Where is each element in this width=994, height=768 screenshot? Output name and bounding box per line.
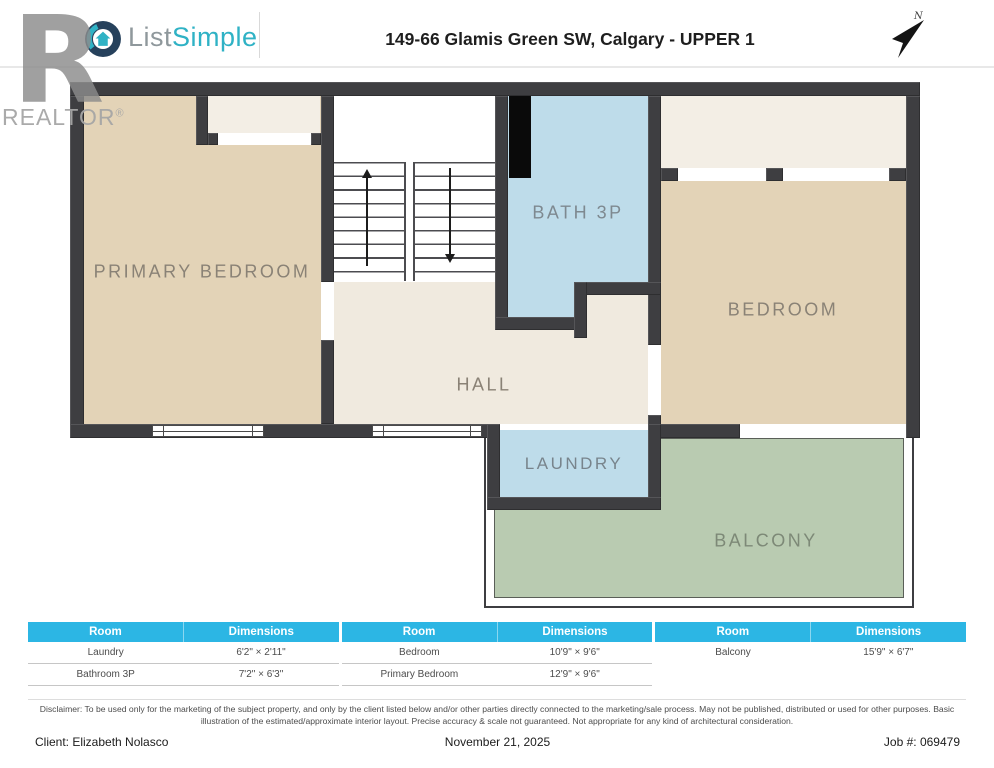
room-label-bedroom: BEDROOM <box>728 300 839 321</box>
table-row: Laundry 6'2" × 2'11" <box>28 642 339 664</box>
footer-job-number: Job #: 069479 <box>884 735 960 749</box>
table-header-row: Room Dimensions <box>655 622 966 642</box>
wall-segment <box>70 96 84 438</box>
disclaimer-rule <box>28 699 966 700</box>
wall-segment <box>321 96 334 282</box>
balcony-sliding-door <box>740 424 906 438</box>
wall-segment <box>661 168 678 181</box>
room-label-bath: BATH 3P <box>532 203 623 224</box>
wall-segment <box>70 82 920 96</box>
header-rule <box>0 66 994 68</box>
logo-simple-word: Simple <box>172 22 258 52</box>
wall-segment <box>574 282 587 338</box>
primary-bedroom-closet <box>208 96 320 133</box>
wall-segment <box>495 317 581 330</box>
table-row: Primary Bedroom 12'9" × 9'6" <box>342 664 653 686</box>
page-title: 149-66 Glamis Green SW, Calgary - UPPER … <box>260 29 880 50</box>
listsimple-logo: ListSimple <box>128 22 258 53</box>
wall-segment <box>487 497 661 510</box>
stair-up-arrow <box>366 171 368 266</box>
cell-dimensions: 7'2" × 6'3" <box>183 664 338 685</box>
wall-segment <box>311 133 321 145</box>
table-row: Bathroom 3P 7'2" × 6'3" <box>28 664 339 686</box>
column-header-room: Room <box>655 622 810 642</box>
footer-date: November 21, 2025 <box>445 735 550 749</box>
cell-dimensions: 6'2" × 2'11" <box>183 642 338 663</box>
table-row: Balcony 15'9" × 6'7" <box>655 642 966 663</box>
table-group-1: Room Dimensions Laundry 6'2" × 2'11" Bat… <box>28 622 339 686</box>
wall-segment <box>196 96 208 145</box>
hall-alcove <box>581 295 648 330</box>
room-primary-bedroom <box>84 96 321 424</box>
north-arrow-icon: N <box>886 6 930 62</box>
wall-segment <box>495 96 508 330</box>
table-row: Bedroom 10'9" × 9'6" <box>342 642 653 664</box>
stair-down-arrow <box>449 168 451 261</box>
dimensions-table: Room Dimensions Laundry 6'2" × 2'11" Bat… <box>28 622 966 686</box>
wall-segment <box>766 168 783 181</box>
floorplan-page: ListSimple 149-66 Glamis Green SW, Calga… <box>0 0 994 768</box>
wall-segment <box>889 168 906 181</box>
table-group-3: Room Dimensions Balcony 15'9" × 6'7" <box>655 622 966 686</box>
disclaimer-text: Disclaimer: To be used only for the mark… <box>37 704 957 727</box>
hall-window <box>372 425 482 437</box>
cell-room: Bathroom 3P <box>28 664 183 685</box>
room-label-laundry: LAUNDRY <box>525 454 623 474</box>
wall-segment <box>321 340 334 424</box>
cell-dimensions: 10'9" × 9'6" <box>497 642 652 663</box>
bedroom-closet-sliding-door <box>661 168 906 181</box>
primary-bedroom-window <box>152 425 264 437</box>
primary-closet-sliding-door <box>208 133 321 145</box>
plumbing-chase <box>509 96 531 178</box>
column-header-room: Room <box>28 622 183 642</box>
column-header-dimensions: Dimensions <box>183 622 339 642</box>
realtor-watermark-text: REALTOR® <box>2 104 125 131</box>
realtor-word: REALTOR <box>2 104 116 130</box>
wall-segment <box>574 282 661 295</box>
stair-treads-left <box>334 162 404 273</box>
cell-room: Bedroom <box>342 642 497 663</box>
column-header-dimensions: Dimensions <box>497 622 653 642</box>
wall-segment <box>648 96 661 345</box>
cell-dimensions: 15'9" × 6'7" <box>811 642 966 663</box>
cell-room: Laundry <box>28 642 183 663</box>
room-label-hall: HALL <box>456 375 511 396</box>
stair-divider <box>413 162 415 281</box>
column-header-dimensions: Dimensions <box>810 622 966 642</box>
footer-client: Client: Elizabeth Nolasco <box>35 735 168 749</box>
room-label-primary-bedroom: PRIMARY BEDROOM <box>94 262 311 283</box>
table-group-2: Room Dimensions Bedroom 10'9" × 9'6" Pri… <box>342 622 653 686</box>
cell-room: Primary Bedroom <box>342 664 497 685</box>
table-header-row: Room Dimensions <box>28 622 339 642</box>
logo-list-word: List <box>128 22 172 52</box>
compass-n-label: N <box>913 11 924 22</box>
registered-mark: ® <box>116 107 125 119</box>
cell-dimensions: 12'9" × 9'6" <box>497 664 652 685</box>
cell-room: Balcony <box>655 642 810 663</box>
wall-segment <box>906 96 920 438</box>
footer: Client: Elizabeth Nolasco November 21, 2… <box>35 735 960 749</box>
wall-segment <box>648 424 740 438</box>
room-label-balcony: BALCONY <box>714 531 818 552</box>
wall-segment <box>208 133 218 145</box>
stair-divider <box>404 162 406 281</box>
column-header-room: Room <box>342 622 497 642</box>
bedroom-closet <box>661 96 906 168</box>
table-header-row: Room Dimensions <box>342 622 653 642</box>
